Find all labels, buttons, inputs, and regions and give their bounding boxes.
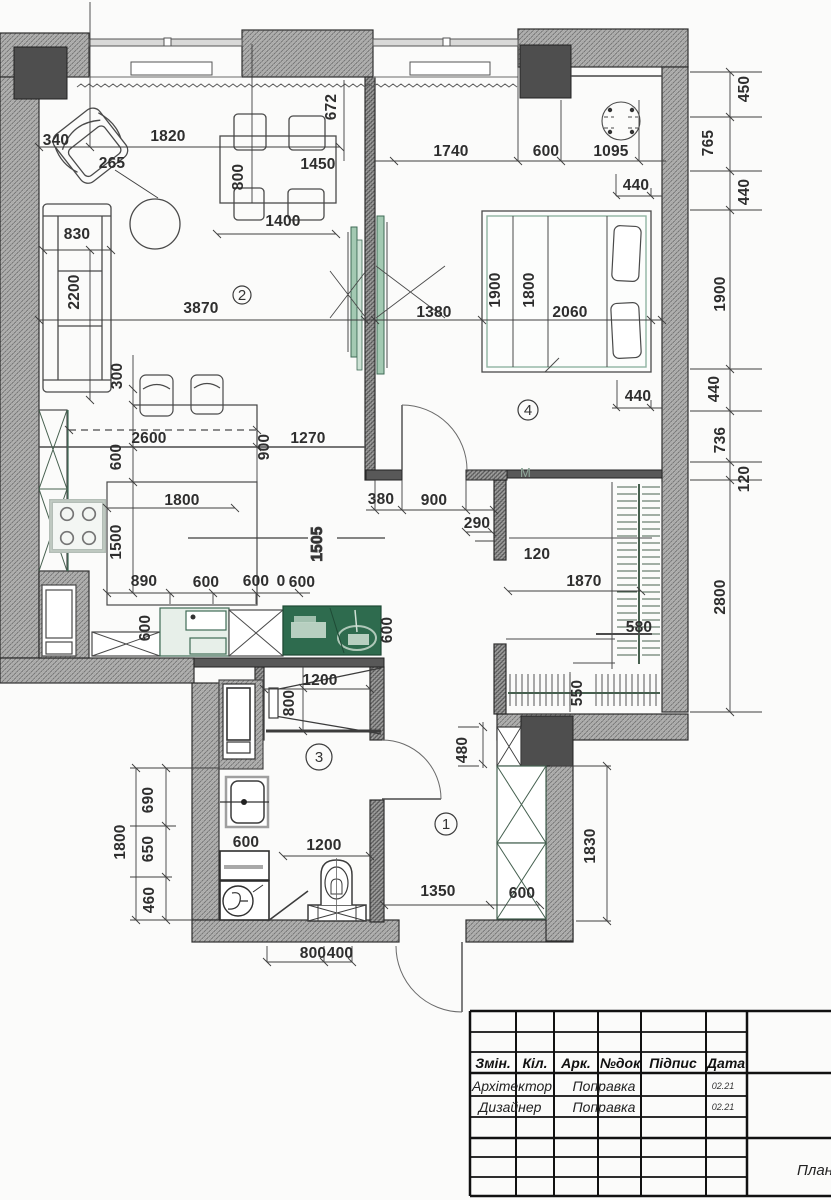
svg-text:900: 900 bbox=[421, 492, 447, 509]
svg-text:1800: 1800 bbox=[164, 492, 199, 509]
svg-text:265: 265 bbox=[99, 155, 126, 172]
svg-text:600: 600 bbox=[533, 143, 559, 160]
svg-text:650: 650 bbox=[140, 836, 157, 862]
svg-text:890: 890 bbox=[131, 573, 157, 590]
svg-text:1800: 1800 bbox=[521, 272, 538, 307]
svg-text:2600: 2600 bbox=[131, 430, 166, 447]
svg-text:1200: 1200 bbox=[302, 672, 337, 689]
svg-text:1400: 1400 bbox=[265, 213, 300, 230]
svg-text:02.21: 02.21 bbox=[712, 1102, 735, 1112]
svg-text:М: М bbox=[520, 465, 531, 480]
svg-text:Архітектор: Архітектор bbox=[471, 1078, 552, 1094]
svg-text:600: 600 bbox=[243, 573, 269, 590]
svg-text:480: 480 bbox=[454, 737, 471, 763]
svg-text:580: 580 bbox=[626, 619, 652, 636]
svg-text:1095: 1095 bbox=[593, 143, 628, 160]
svg-text:0: 0 bbox=[277, 573, 286, 590]
svg-text:2800: 2800 bbox=[712, 579, 729, 614]
svg-text:Арк.: Арк. bbox=[560, 1055, 591, 1071]
svg-text:Підпис: Підпис bbox=[649, 1055, 697, 1071]
svg-text:900: 900 bbox=[256, 434, 273, 460]
svg-text:2060: 2060 bbox=[552, 304, 587, 321]
svg-text:340: 340 bbox=[43, 132, 69, 149]
svg-text:600: 600 bbox=[108, 444, 125, 470]
svg-text:4: 4 bbox=[524, 402, 532, 419]
svg-text:1740: 1740 bbox=[433, 143, 468, 160]
svg-text:Кіл.: Кіл. bbox=[522, 1055, 547, 1071]
svg-text:Дизайнер: Дизайнер bbox=[477, 1099, 542, 1115]
svg-text:1900: 1900 bbox=[712, 276, 729, 311]
svg-text:690: 690 bbox=[140, 787, 157, 813]
svg-text:3: 3 bbox=[315, 749, 323, 766]
svg-text:1800: 1800 bbox=[112, 824, 129, 859]
svg-text:120: 120 bbox=[524, 546, 550, 563]
svg-text:1350: 1350 bbox=[420, 883, 455, 900]
svg-text:1870: 1870 bbox=[566, 573, 601, 590]
svg-text:1505: 1505 bbox=[309, 526, 326, 561]
svg-text:1450: 1450 bbox=[300, 156, 335, 173]
svg-text:400: 400 bbox=[327, 945, 353, 962]
svg-text:830: 830 bbox=[64, 226, 90, 243]
svg-text:Поправка: Поправка bbox=[573, 1099, 636, 1115]
svg-text:План: План bbox=[797, 1162, 831, 1179]
svg-text:300: 300 bbox=[109, 363, 126, 389]
svg-text:600: 600 bbox=[193, 574, 219, 591]
svg-text:550: 550 bbox=[569, 680, 586, 706]
svg-text:736: 736 bbox=[712, 427, 729, 454]
svg-text:440: 440 bbox=[625, 388, 651, 405]
svg-text:440: 440 bbox=[623, 177, 649, 194]
svg-text:120: 120 bbox=[736, 466, 753, 492]
svg-text:672: 672 bbox=[323, 94, 340, 120]
svg-text:600: 600 bbox=[137, 615, 154, 641]
svg-text:600: 600 bbox=[509, 885, 535, 902]
svg-text:450: 450 bbox=[736, 76, 753, 102]
svg-text:1900: 1900 bbox=[487, 272, 504, 307]
svg-text:600: 600 bbox=[289, 574, 315, 591]
svg-text:440: 440 bbox=[706, 376, 723, 402]
svg-text:02.21: 02.21 bbox=[712, 1081, 735, 1091]
svg-text:765: 765 bbox=[700, 130, 717, 157]
svg-text:1200: 1200 bbox=[306, 837, 341, 854]
svg-text:1: 1 bbox=[442, 816, 450, 833]
svg-text:800: 800 bbox=[230, 164, 247, 190]
svg-text:2: 2 bbox=[238, 287, 246, 304]
svg-text:Поправка: Поправка bbox=[573, 1078, 636, 1094]
svg-text:№док: №док bbox=[600, 1055, 641, 1071]
svg-text:1380: 1380 bbox=[416, 304, 451, 321]
svg-text:600: 600 bbox=[379, 617, 396, 643]
svg-text:1820: 1820 bbox=[150, 128, 185, 145]
svg-text:2200: 2200 bbox=[66, 274, 83, 309]
svg-text:440: 440 bbox=[736, 179, 753, 205]
svg-text:3870: 3870 bbox=[183, 300, 218, 317]
svg-text:800: 800 bbox=[281, 690, 298, 716]
svg-text:1270: 1270 bbox=[290, 430, 325, 447]
svg-text:1830: 1830 bbox=[582, 828, 599, 863]
svg-text:600: 600 bbox=[233, 834, 259, 851]
svg-text:1500: 1500 bbox=[108, 524, 125, 559]
svg-text:380: 380 bbox=[368, 491, 394, 508]
svg-text:460: 460 bbox=[141, 887, 158, 913]
svg-text:290: 290 bbox=[464, 515, 490, 532]
svg-text:Змін.: Змін. bbox=[475, 1055, 511, 1071]
svg-text:800: 800 bbox=[300, 945, 326, 962]
svg-text:Дата: Дата bbox=[706, 1055, 745, 1071]
